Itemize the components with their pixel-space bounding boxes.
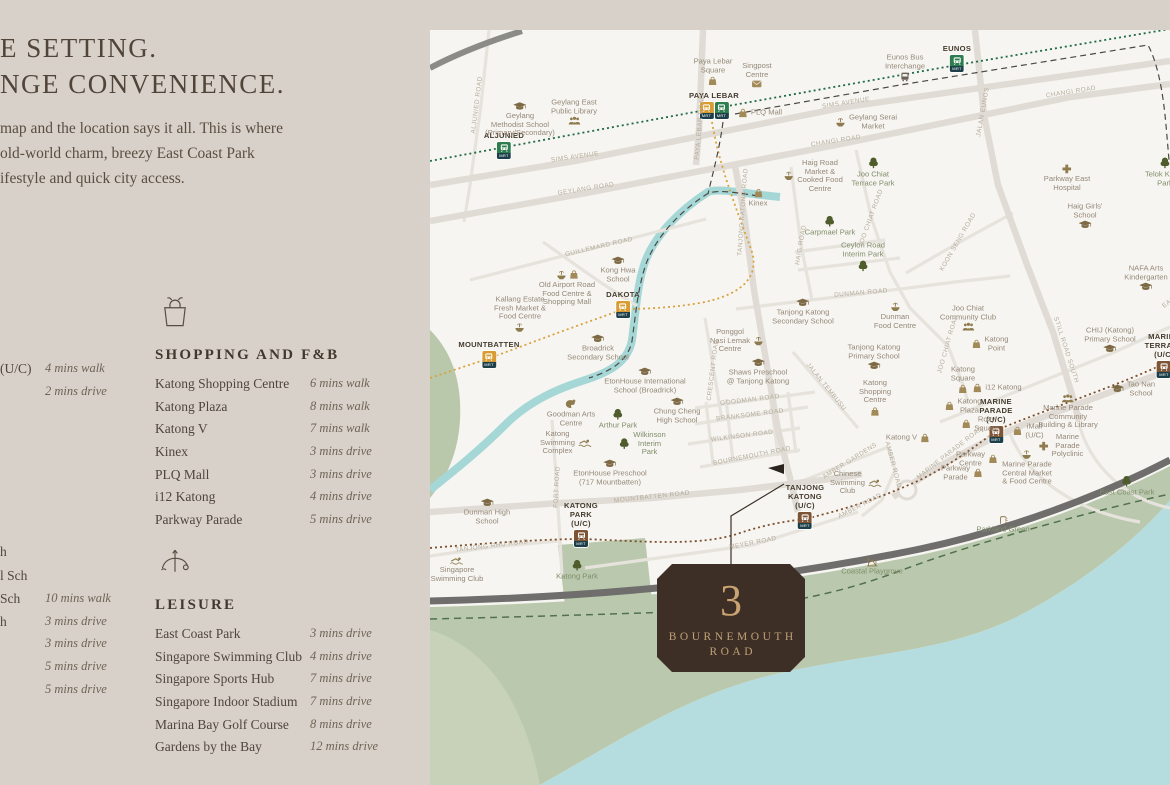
clipped-time: 3 mins drive bbox=[45, 636, 107, 651]
amenity-name: Parkway Parade bbox=[155, 512, 242, 528]
page-title-line1: E SETTING. bbox=[0, 30, 420, 66]
logo-numeral: 3 bbox=[720, 579, 742, 623]
amenity-time: 4 mins drive bbox=[310, 649, 372, 664]
amenity-name: Marina Bay Golf Course bbox=[155, 717, 289, 733]
logo-name: BOURNEMOUTH bbox=[665, 631, 796, 643]
amenity-name: Singapore Sports Hub bbox=[155, 671, 274, 687]
amenity-name: PLQ Mall bbox=[155, 467, 209, 483]
clipped-name-fragment: (U/C) bbox=[0, 361, 32, 377]
amenity-time: 4 mins drive bbox=[310, 489, 372, 504]
amenity-name: East Coast Park bbox=[155, 626, 241, 642]
amenity-name: Katong Shopping Centre bbox=[155, 376, 289, 392]
amenity-row: Gardens by the Bay12 mins drive bbox=[155, 739, 425, 762]
amenity-row: Parkway Parade5 mins drive bbox=[155, 512, 425, 535]
amenity-time: 3 mins drive bbox=[310, 444, 372, 459]
intro-line: map and the location says it all. This i… bbox=[0, 116, 420, 141]
amenity-row: East Coast Park3 mins drive bbox=[155, 626, 425, 649]
amenity-time: 8 mins walk bbox=[310, 399, 370, 414]
amenity-name: Singapore Indoor Stadium bbox=[155, 694, 297, 710]
amenity-time: 3 mins drive bbox=[310, 626, 372, 641]
clipped-time: 2 mins drive bbox=[45, 384, 107, 399]
intro-paragraph: map and the location says it all. This i… bbox=[0, 116, 420, 191]
amenity-time: 3 mins drive bbox=[310, 467, 372, 482]
intro-line: old-world charm, breezy East Coast Park bbox=[0, 141, 420, 166]
amenity-row: PLQ Mall3 mins drive bbox=[155, 467, 425, 490]
amenity-row: Katong V7 mins walk bbox=[155, 421, 425, 444]
logo-road: ROAD bbox=[706, 646, 756, 658]
amenity-row: Singapore Swimming Club4 mins drive bbox=[155, 649, 425, 672]
page-title-line2: NGE CONVENIENCE. bbox=[0, 66, 420, 102]
shopping-section: SHOPPING AND F&B Katong Shopping Centre6… bbox=[155, 295, 425, 535]
leisure-section: LEISURE East Coast Park3 mins driveSinga… bbox=[155, 543, 425, 762]
clipped-time: 5 mins drive bbox=[45, 659, 107, 674]
road-circle bbox=[898, 481, 916, 499]
bournemouth-road-logo: 3 BOURNEMOUTH ROAD bbox=[657, 564, 805, 672]
amenity-name: Kinex bbox=[155, 444, 188, 460]
amenity-name: Katong Plaza bbox=[155, 399, 227, 415]
location-map bbox=[430, 30, 1170, 785]
amenity-time: 7 mins walk bbox=[310, 421, 370, 436]
amenity-name: i12 Katong bbox=[155, 489, 215, 505]
brochure-page: { "colors":{"panel_bg":"#d8d1c9","map_bg… bbox=[0, 0, 1170, 785]
intro-line: ifestyle and quick city access. bbox=[0, 166, 420, 191]
clipped-name-fragment: l Sch bbox=[0, 568, 27, 584]
map-canvas bbox=[430, 30, 1170, 785]
amenity-row: Singapore Sports Hub7 mins drive bbox=[155, 671, 425, 694]
amenity-time: 12 mins drive bbox=[310, 739, 378, 754]
amenity-name: Katong V bbox=[155, 421, 208, 437]
page-title: E SETTING. NGE CONVENIENCE. bbox=[0, 30, 420, 102]
clipped-time: 5 mins drive bbox=[45, 682, 107, 697]
shopping-bag-icon bbox=[157, 295, 425, 334]
amenity-time: 8 mins drive bbox=[310, 717, 372, 732]
amenity-time: 7 mins drive bbox=[310, 694, 372, 709]
amenity-row: i12 Katong4 mins drive bbox=[155, 489, 425, 512]
amenity-row: Kinex3 mins drive bbox=[155, 444, 425, 467]
amenity-name: Gardens by the Bay bbox=[155, 739, 262, 755]
amenity-row: Katong Shopping Centre6 mins walk bbox=[155, 376, 425, 399]
amenity-time: 5 mins drive bbox=[310, 512, 372, 527]
amenity-name: Singapore Swimming Club bbox=[155, 649, 302, 665]
amenity-time: 7 mins drive bbox=[310, 671, 372, 686]
amenity-row: Marina Bay Golf Course8 mins drive bbox=[155, 717, 425, 740]
intro-block: E SETTING. NGE CONVENIENCE. map and the … bbox=[0, 30, 420, 191]
leisure-wheel-icon bbox=[157, 543, 425, 584]
clipped-time: 3 mins drive bbox=[45, 614, 107, 629]
shopping-title: SHOPPING AND F&B bbox=[155, 347, 425, 364]
amenity-row: Singapore Indoor Stadium7 mins drive bbox=[155, 694, 425, 717]
shopping-list: Katong Shopping Centre6 mins walkKatong … bbox=[155, 376, 425, 535]
leisure-title: LEISURE bbox=[155, 597, 425, 614]
amenity-row: Katong Plaza8 mins walk bbox=[155, 399, 425, 422]
clipped-time: 10 mins walk bbox=[45, 591, 111, 606]
amenity-time: 6 mins walk bbox=[310, 376, 370, 391]
clipped-name-fragment: Sch bbox=[0, 591, 20, 607]
clipped-name-fragment: h bbox=[0, 614, 7, 630]
leisure-list: East Coast Park3 mins driveSingapore Swi… bbox=[155, 626, 425, 762]
clipped-time: 4 mins walk bbox=[45, 361, 105, 376]
clipped-name-fragment: h bbox=[0, 544, 7, 560]
